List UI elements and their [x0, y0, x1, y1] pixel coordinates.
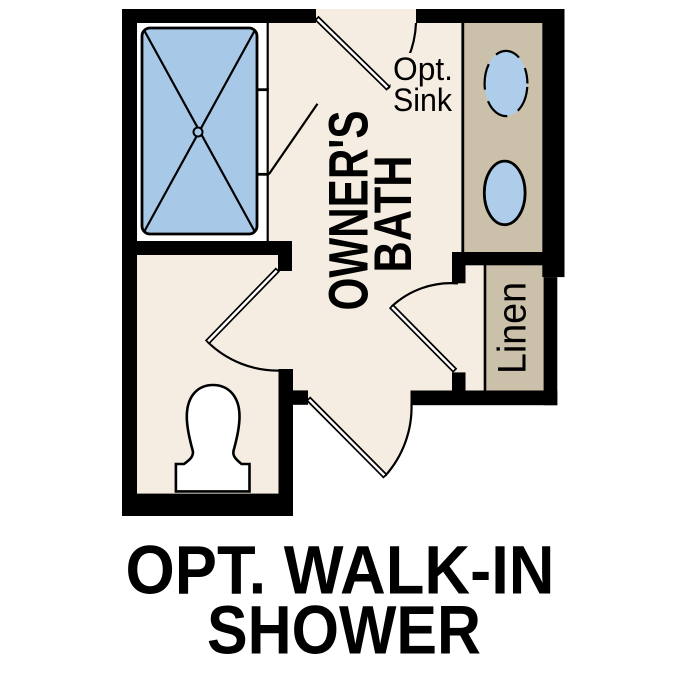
svg-text:SHOWER: SHOWER [207, 592, 481, 669]
svg-text:BATH: BATH [364, 156, 423, 273]
svg-text:Linen: Linen [491, 282, 535, 374]
svg-text:Sink: Sink [393, 82, 453, 118]
